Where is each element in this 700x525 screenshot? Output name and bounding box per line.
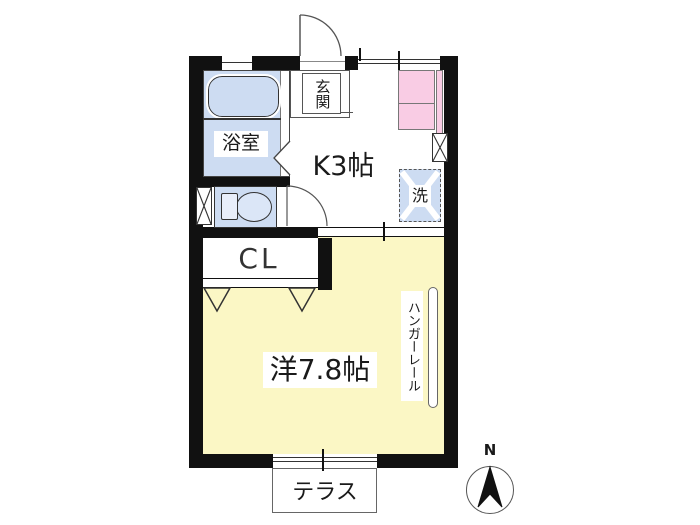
partition-center-tick (383, 222, 385, 241)
compass-north-label: N (479, 442, 501, 460)
kitchen-label: K3帖 (296, 148, 391, 186)
terrace-label: テラス (283, 479, 367, 507)
hanger-rail-label: ハンガーレール (401, 291, 423, 401)
entry-door-opening (300, 56, 345, 70)
bath-label: 浴室 (214, 131, 268, 157)
bathroom-door-jamb (280, 71, 289, 176)
entrance-step-line (341, 112, 353, 113)
closet-label: CL (228, 243, 290, 274)
toilet-bowl (236, 192, 272, 222)
kitchen-living-partition (318, 227, 444, 237)
compass-circle (466, 466, 514, 514)
terrace-window-line1 (273, 457, 377, 458)
kitchen-window-tick-left (359, 48, 361, 61)
closet-door-track (203, 278, 318, 288)
toilet-door-arc (287, 186, 327, 226)
floor-plan: 玄関 K3帖 浴室 洗 CL 洋7.8帖 ハンガーレール テラス N (0, 0, 700, 525)
kitchen-counter-divider (398, 103, 435, 104)
entry-threshold-line (300, 61, 345, 62)
washer-side-window (432, 133, 448, 162)
entrance-label: 玄関 (304, 76, 339, 112)
terrace-window-line2 (273, 461, 377, 462)
hanger-rail (428, 287, 438, 408)
laundry-label: 洗 (409, 185, 431, 207)
wall-right (444, 56, 458, 468)
bathroom-divider-line (203, 118, 281, 120)
bath-window-line (222, 62, 252, 63)
kitchen-counter-edge (436, 70, 443, 134)
kitchen-counter (398, 70, 435, 130)
living-room-label: 洋7.8帖 (263, 352, 377, 388)
wall-below-toilet (203, 227, 318, 238)
wall-closet-right (318, 238, 332, 290)
wall-left (189, 56, 203, 468)
toilet-side-window (196, 187, 212, 225)
bathtub (208, 76, 279, 117)
entry-door-arc (300, 15, 341, 56)
terrace-window-tick (322, 449, 324, 471)
kitchen-window-tick-center (398, 51, 400, 70)
toilet-tank (221, 193, 238, 220)
